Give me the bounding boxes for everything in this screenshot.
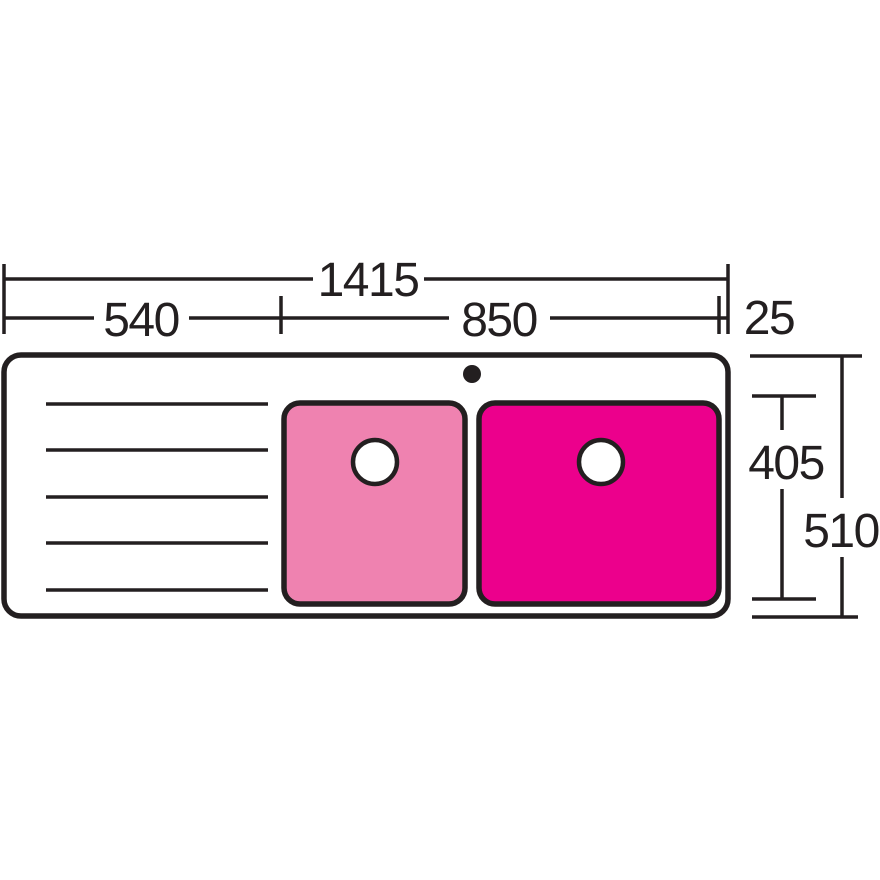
dim-label-bowl-section-width: 850 [461,294,537,347]
dim-label-overall-width: 1415 [318,254,419,307]
left-bowl-drain-hole [353,440,397,484]
right-bowl-outline [479,403,719,604]
right-bowl [479,403,719,604]
sink-technical-drawing-page: 1415 540 850 25 [0,0,880,880]
left-bowl [284,403,465,604]
sink-body [4,355,728,616]
dim-label-bowl-depth: 405 [748,437,824,490]
tap-hole [463,365,481,383]
left-bowl-outline [284,403,465,604]
dim-label-right-rim-width: 25 [744,292,794,345]
right-bowl-drain-hole [579,440,623,484]
sink-technical-drawing: 1415 540 850 25 [0,0,880,880]
dimension-bowl-depth: 405 [748,396,824,599]
dim-label-drainer-width: 540 [103,294,179,347]
dim-label-overall-depth: 510 [803,505,879,558]
